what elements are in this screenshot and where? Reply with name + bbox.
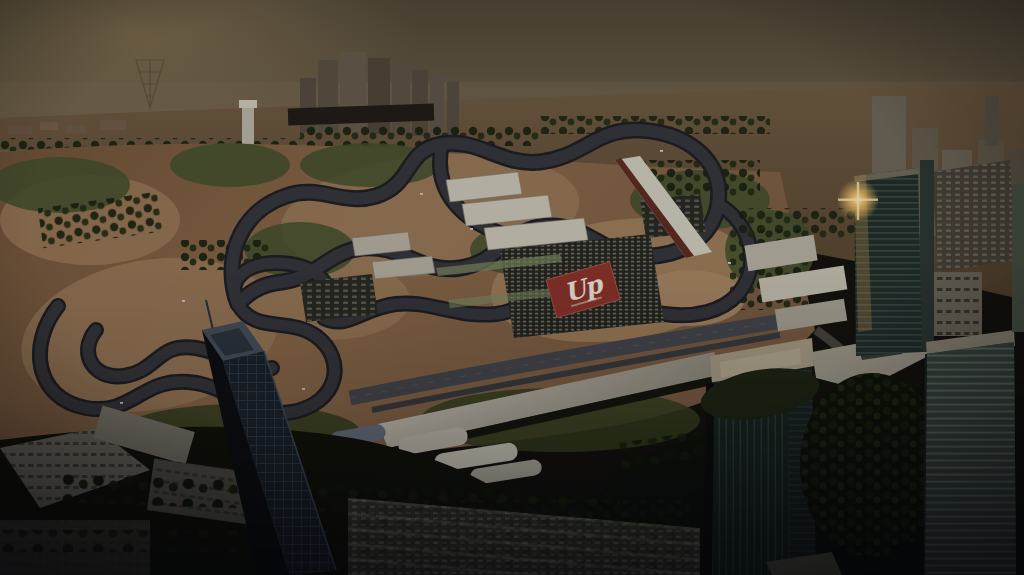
aerial-rendering-screenshot: Up xyxy=(0,0,1024,575)
motorsport-city-scene: Up xyxy=(0,0,1024,575)
dim-overlay xyxy=(0,0,1024,575)
